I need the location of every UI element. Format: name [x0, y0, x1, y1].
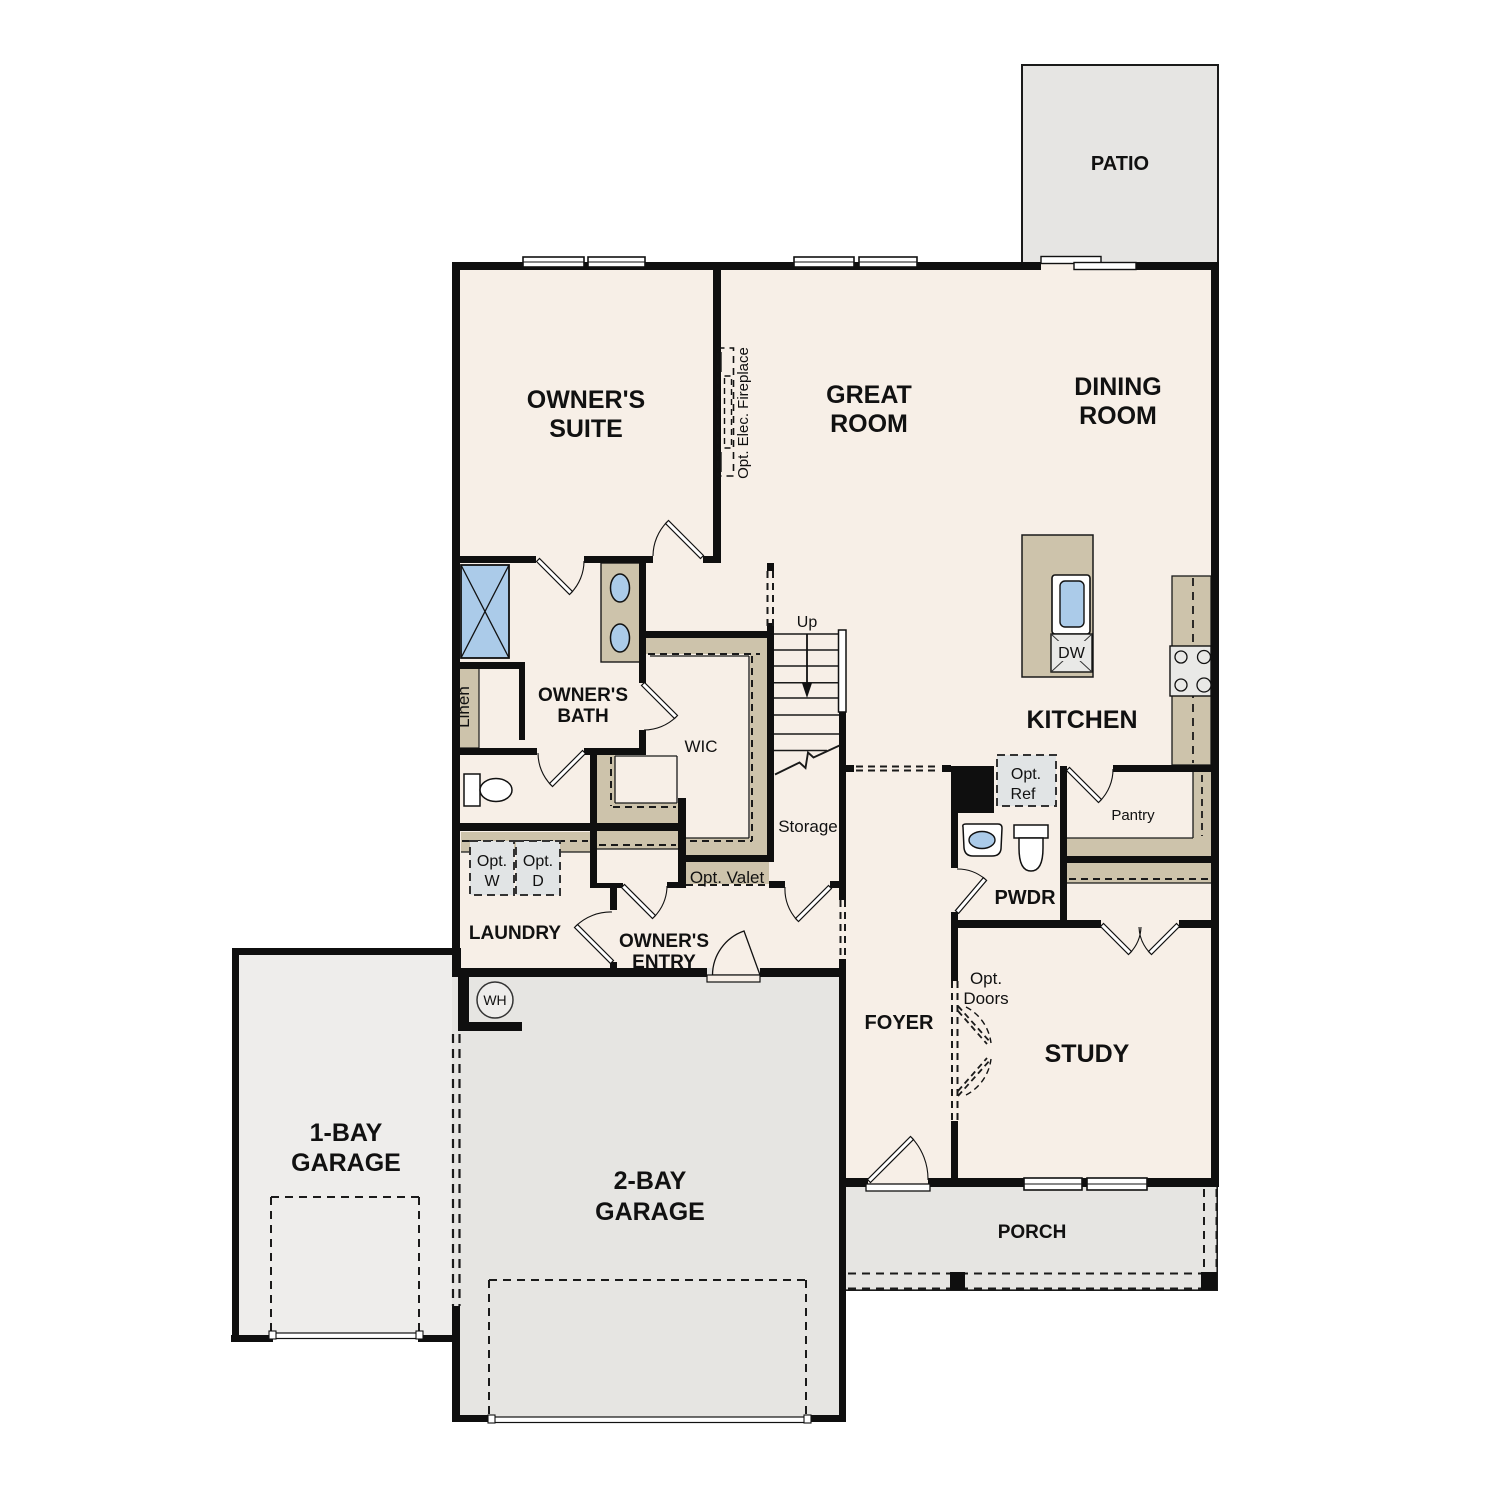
svg-text:LAUNDRY: LAUNDRY [469, 923, 562, 944]
svg-text:SUITE: SUITE [549, 415, 623, 443]
svg-text:OWNER'S: OWNER'S [527, 386, 645, 414]
svg-text:Up: Up [797, 614, 818, 631]
svg-text:Opt.: Opt. [970, 969, 1002, 988]
svg-text:GARAGE: GARAGE [595, 1198, 705, 1226]
svg-text:Opt.: Opt. [1011, 766, 1041, 783]
svg-text:Opt.: Opt. [523, 853, 553, 870]
svg-text:Ref: Ref [1011, 786, 1036, 803]
svg-text:OWNER'S: OWNER'S [619, 931, 709, 952]
svg-text:BATH: BATH [557, 706, 608, 727]
svg-text:PWDR: PWDR [994, 887, 1056, 909]
svg-text:ROOM: ROOM [1079, 402, 1157, 430]
svg-text:Doors: Doors [963, 989, 1008, 1008]
svg-text:DW: DW [1058, 645, 1086, 662]
svg-text:1-BAY: 1-BAY [310, 1119, 383, 1147]
svg-text:OWNER'S: OWNER'S [538, 685, 628, 706]
svg-text:W: W [484, 873, 500, 890]
svg-text:Linen: Linen [454, 686, 473, 728]
svg-text:DINING: DINING [1074, 373, 1162, 401]
svg-text:FOYER: FOYER [865, 1012, 934, 1034]
svg-text:Opt. Elec. Fireplace: Opt. Elec. Fireplace [735, 347, 752, 479]
svg-text:Opt.: Opt. [477, 853, 507, 870]
svg-text:ROOM: ROOM [830, 410, 908, 438]
svg-text:Opt. Valet: Opt. Valet [690, 868, 765, 887]
svg-text:ENTRY: ENTRY [632, 952, 696, 973]
svg-text:Storage: Storage [778, 817, 838, 836]
svg-text:KITCHEN: KITCHEN [1026, 706, 1137, 734]
svg-text:GREAT: GREAT [826, 381, 912, 409]
svg-text:WIC: WIC [684, 737, 717, 756]
svg-text:2-BAY: 2-BAY [614, 1167, 687, 1195]
svg-text:PORCH: PORCH [998, 1222, 1067, 1243]
svg-text:STUDY: STUDY [1045, 1040, 1130, 1068]
svg-text:PATIO: PATIO [1091, 153, 1149, 175]
svg-text:GARAGE: GARAGE [291, 1149, 401, 1177]
svg-text:D: D [532, 873, 544, 890]
svg-text:Pantry: Pantry [1111, 807, 1155, 824]
svg-text:WH: WH [483, 992, 506, 1008]
